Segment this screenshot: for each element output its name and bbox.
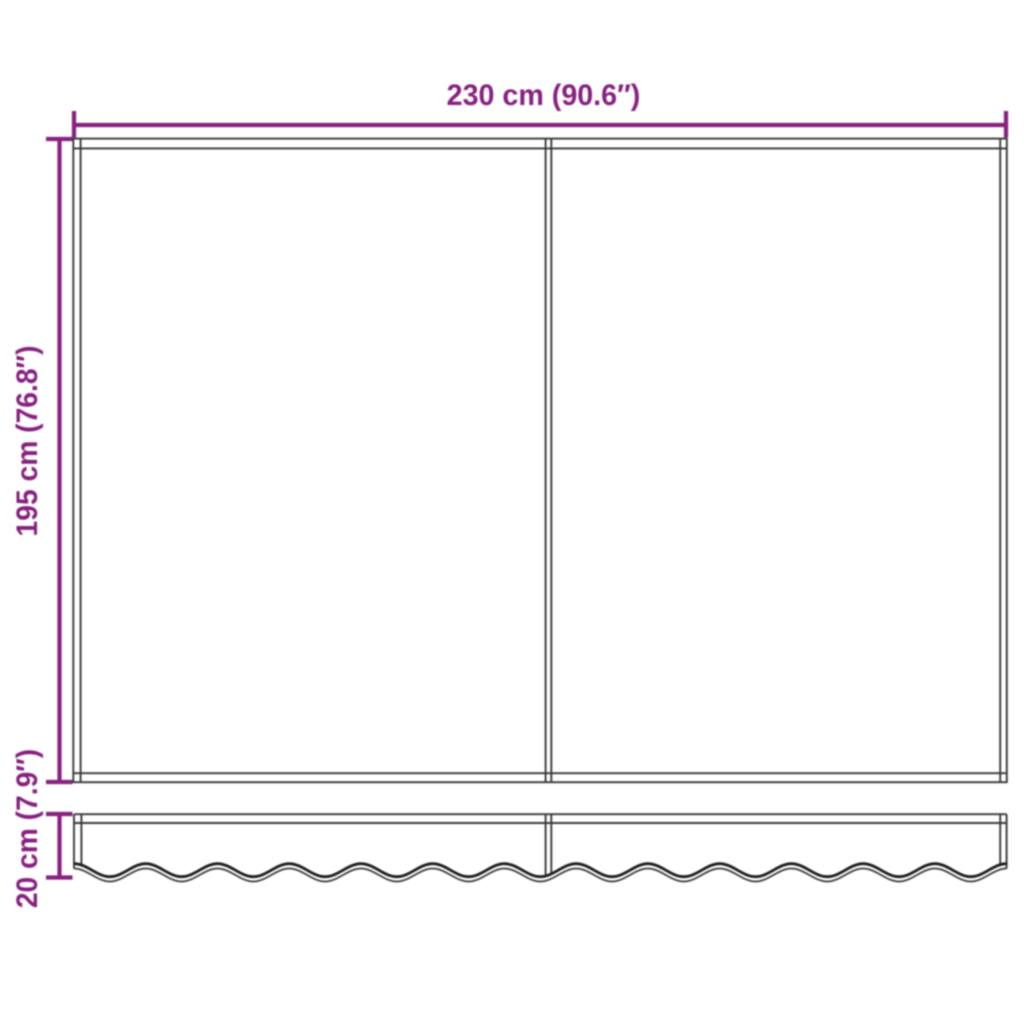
- svg-text:20 cm (7.9″): 20 cm (7.9″): [11, 749, 44, 908]
- svg-text:195 cm (76.8″): 195 cm (76.8″): [11, 346, 44, 537]
- svg-text:230 cm (90.6″): 230 cm (90.6″): [447, 78, 641, 112]
